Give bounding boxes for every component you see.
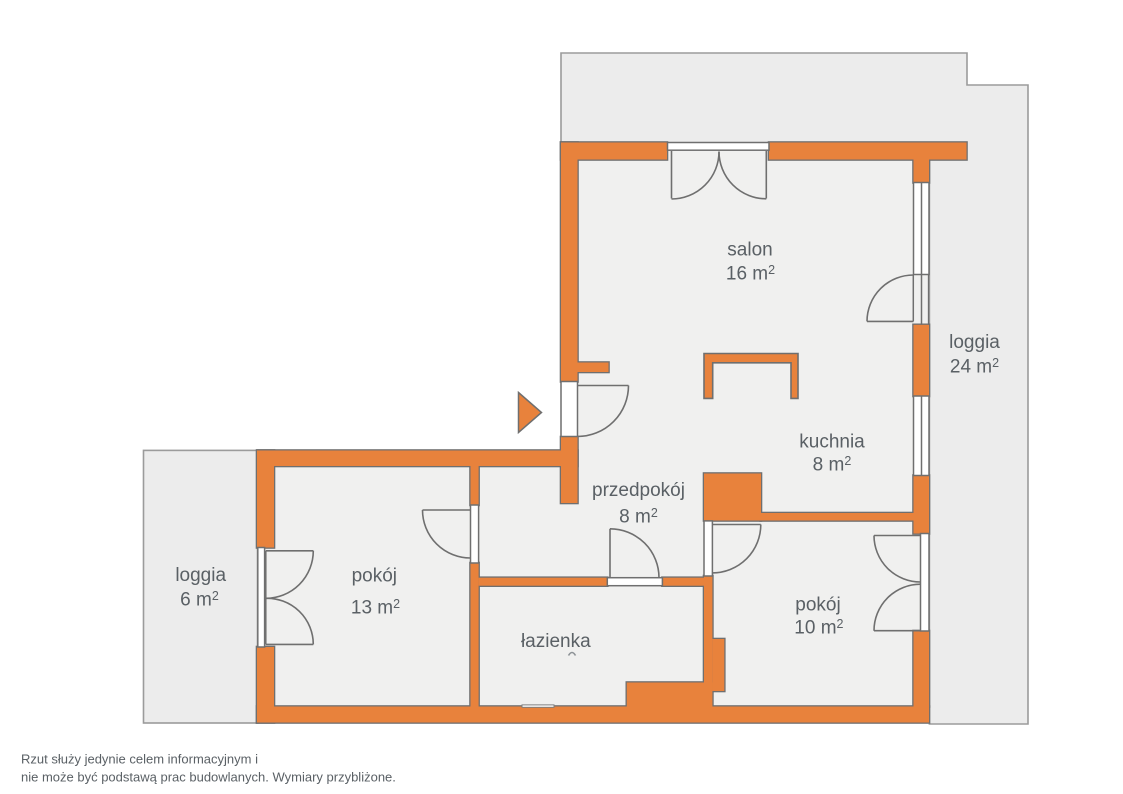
svg-text:10 m2: 10 m2 bbox=[794, 617, 843, 639]
svg-text:loggia: loggia bbox=[175, 565, 226, 586]
svg-text:salon: salon bbox=[727, 239, 772, 260]
svg-text:13 m2: 13 m2 bbox=[351, 597, 400, 619]
svg-text:przedpokój: przedpokój bbox=[592, 480, 685, 501]
svg-text:nie może być podstawą prac bud: nie może być podstawą prac budowlanych. … bbox=[21, 770, 396, 785]
svg-text:24 m2: 24 m2 bbox=[950, 356, 999, 378]
svg-text:16 m2: 16 m2 bbox=[726, 263, 775, 285]
svg-text:Rzut służy jedynie celem infor: Rzut służy jedynie celem informacyjnym i bbox=[21, 752, 258, 767]
svg-text:pokój: pokój bbox=[795, 595, 840, 616]
svg-text:kuchnia: kuchnia bbox=[799, 432, 865, 453]
svg-text:loggia: loggia bbox=[949, 332, 1000, 353]
svg-text:łazienka: łazienka bbox=[521, 631, 591, 652]
svg-text:pokój: pokój bbox=[352, 566, 397, 587]
